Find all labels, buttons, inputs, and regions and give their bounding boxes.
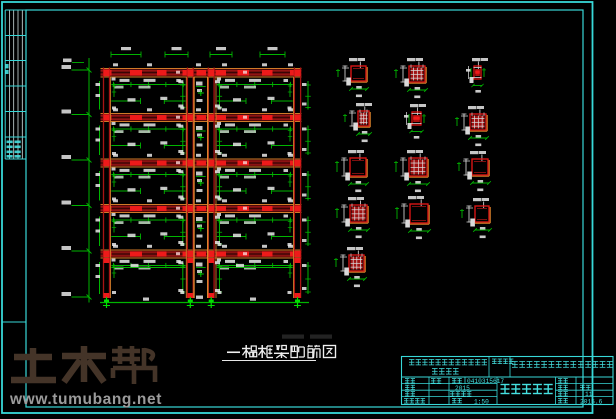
svg-text:www.tumubang.net: www.tumubang.net <box>9 391 162 408</box>
svg-text:11: 11 <box>585 391 593 398</box>
svg-text:0410315617: 0410315617 <box>467 378 504 385</box>
svg-text:2015: 2015 <box>455 385 470 392</box>
svg-text:2015.6: 2015.6 <box>580 398 603 405</box>
svg-text:1:50: 1:50 <box>474 398 489 405</box>
